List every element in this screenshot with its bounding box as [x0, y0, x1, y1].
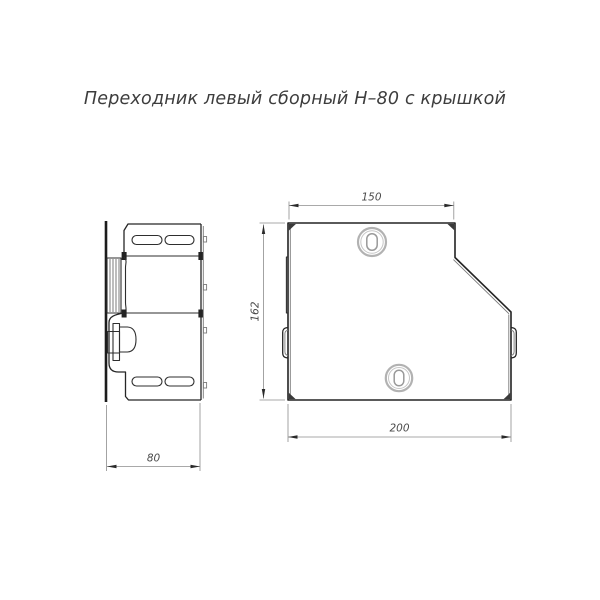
arrowhead-right: [502, 435, 512, 438]
dimension-162: 162: [250, 223, 286, 400]
corner-chamfer-mark: [447, 224, 454, 230]
side-view: 80: [106, 221, 207, 471]
arrowhead-bottom: [262, 389, 265, 399]
arrowhead-right: [444, 204, 454, 207]
dimension-80: 80: [107, 403, 201, 471]
corner-chamfer-mark: [504, 393, 511, 399]
side-slot-hole: [132, 377, 162, 386]
side-clip-mark: [203, 285, 206, 291]
drawing-page: Переходник левый сборный Н–80 с крышкой: [0, 0, 600, 600]
technical-drawing: Переходник левый сборный Н–80 с крышкой: [0, 0, 600, 600]
arrowhead-left: [289, 204, 299, 207]
dimension-150-value: 150: [361, 192, 381, 204]
arrowhead-left: [288, 435, 298, 438]
side-slot-hole: [132, 236, 162, 245]
dimension-200-value: 200: [389, 423, 409, 435]
fastener-bottom: [386, 365, 412, 391]
side-clip-mark: [203, 237, 206, 243]
fastener-slot: [394, 370, 404, 386]
front-view: 150 162 200: [250, 192, 517, 443]
side-latch-head: [120, 327, 137, 352]
side-clip-mark: [203, 383, 206, 389]
dimension-162-value: 162: [250, 301, 262, 321]
dimension-200: 200: [288, 404, 511, 442]
side-lower-body: [109, 313, 201, 400]
side-weld-mark: [122, 252, 127, 260]
side-latch-shaft: [113, 324, 120, 361]
side-slot-hole: [165, 377, 194, 386]
fastener-outer-ring: [386, 365, 412, 391]
side-slot-hole: [165, 236, 194, 245]
front-body-outline: [288, 223, 511, 400]
arrowhead-right: [191, 465, 201, 468]
side-clip-mark: [203, 328, 206, 334]
arrowhead-top: [262, 225, 265, 235]
fastener-outer-ring: [358, 228, 386, 256]
front-diagonal-inner-line: [453, 260, 509, 314]
dimension-80-value: 80: [147, 453, 161, 465]
dimension-150: 150: [289, 192, 454, 220]
side-connector-ribs: [110, 259, 119, 312]
drawing-title: Переходник левый сборный Н–80 с крышкой: [84, 89, 506, 109]
fastener-slot: [367, 234, 377, 250]
corner-chamfer-mark: [289, 393, 296, 399]
side-mid-edge: [124, 257, 126, 313]
arrowhead-left: [107, 465, 117, 468]
fastener-top: [358, 228, 386, 256]
